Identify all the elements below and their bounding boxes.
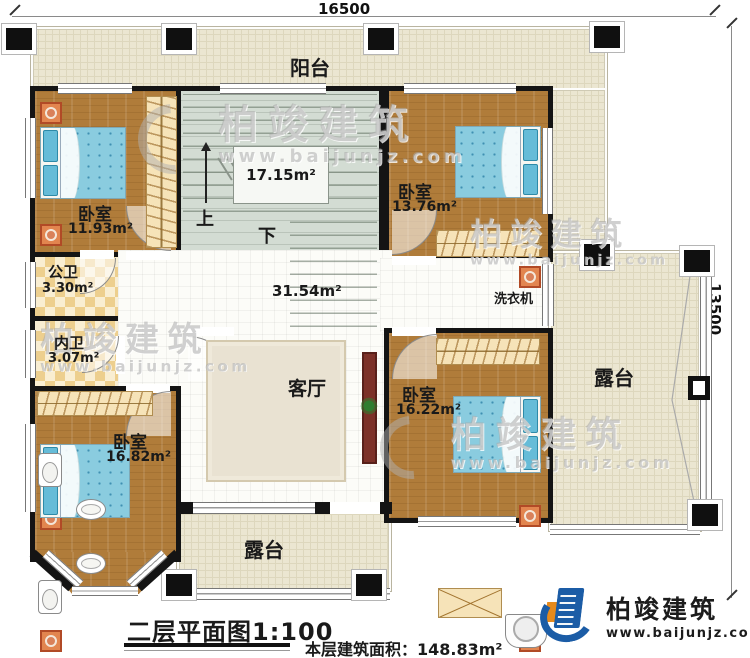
sink [76, 499, 106, 520]
column [166, 28, 192, 50]
floor-area-note: 本层建筑面积：148.83m² [305, 636, 502, 658]
column [356, 574, 382, 596]
closet [436, 230, 540, 257]
pillow [523, 436, 538, 470]
window [25, 262, 36, 308]
stairs-area-callout: 17.15m² [233, 146, 329, 204]
pillow [43, 165, 58, 197]
bed [455, 126, 541, 198]
pillow [43, 483, 58, 516]
column [584, 244, 610, 266]
column [684, 250, 710, 272]
up-arrow-icon [201, 142, 211, 151]
terrace-gate-lines [548, 250, 702, 532]
bedroom-bl-area: 16.82m² [106, 449, 171, 465]
pillow [523, 399, 538, 433]
brand-name: 柏竣建筑 [606, 590, 750, 626]
bed-headboard [520, 397, 540, 472]
living-terrace-door-gap [330, 502, 380, 514]
bed-headboard [520, 127, 540, 197]
laundry-label: 洗衣机 [494, 288, 533, 307]
bed [40, 127, 126, 199]
bed-sheet [61, 128, 80, 198]
toilet [38, 453, 62, 487]
window [404, 83, 516, 94]
dimension-line-right [731, 26, 732, 598]
bath-public-label: 公卫 [48, 261, 78, 282]
nightstand [40, 630, 62, 652]
plant [359, 396, 379, 416]
column [594, 26, 620, 48]
window [25, 330, 36, 378]
column [692, 504, 718, 526]
stairs-area-label: 17.15m² [246, 166, 316, 184]
hall-area: 31.54m² [272, 282, 342, 300]
pillow [523, 129, 538, 161]
column [166, 574, 192, 596]
stairs-down-label: 下 [258, 222, 276, 248]
window [25, 118, 36, 198]
window [418, 516, 516, 527]
nightstand [519, 266, 541, 288]
brand-building-icon [540, 586, 598, 644]
nightstand [40, 102, 62, 124]
bay-window [72, 586, 138, 596]
door-gap [126, 251, 170, 260]
column [6, 28, 32, 50]
living-label: 客厅 [288, 374, 326, 401]
corridor-terrace-door [542, 264, 554, 326]
bed-mattress [456, 127, 520, 197]
bed-mattress [61, 128, 125, 198]
bedroom-tr-area: 13.76m² [392, 199, 457, 215]
bath-private-area: 3.07m² [48, 351, 99, 366]
closet [146, 96, 177, 248]
brand-swoosh-icon [535, 587, 598, 647]
window [542, 128, 553, 214]
dimension-tick [726, 17, 737, 28]
brand-logo: 柏竣建筑 www.baijunjz.com [540, 586, 750, 644]
window [220, 83, 326, 94]
bed-sheet [501, 127, 520, 197]
door-gap [188, 327, 234, 336]
window [58, 83, 132, 94]
terrace-right-label: 露台 [594, 362, 634, 391]
balcony-label: 阳台 [290, 52, 330, 81]
nightstand [519, 505, 541, 527]
bath-public-area: 3.30m² [42, 281, 93, 296]
bed [453, 396, 541, 473]
plan-title: 二层平面图1:100 [127, 612, 333, 647]
title-underline [124, 643, 290, 647]
balcony-right-wing [548, 88, 608, 254]
floor-plan: 16500 13500 [0, 0, 750, 658]
nightstand [40, 224, 62, 246]
window [25, 424, 36, 512]
title-underline-thin [124, 650, 290, 651]
bath-private-label: 内卫 [54, 332, 84, 353]
toilet [38, 580, 62, 614]
column-open [688, 376, 710, 400]
up-arrow-line [205, 151, 207, 203]
bed-sheet [501, 397, 520, 472]
bedroom-br-area: 16.22m² [396, 402, 461, 418]
bed-headboard [41, 128, 61, 198]
closet [37, 391, 153, 416]
dimension-tick [9, 4, 20, 15]
laundry-cabinet [438, 588, 502, 618]
bedroom-tl-area: 11.93m² [68, 221, 133, 237]
stairs-up-label: 上 [196, 205, 214, 231]
door-gap [392, 256, 436, 265]
pillow [523, 164, 538, 196]
stair-treads [290, 212, 377, 327]
bed-mattress [454, 397, 520, 472]
living-window [193, 502, 315, 514]
terrace-bottom-label: 露台 [244, 534, 284, 563]
sink [76, 553, 106, 574]
closet [436, 338, 540, 365]
brand-url: www.baijunjz.com [606, 626, 750, 641]
dimension-tick [709, 4, 720, 15]
living-rug [206, 340, 346, 482]
column [368, 28, 394, 50]
pillow [43, 130, 58, 162]
dimension-top-label: 16500 [318, 0, 370, 18]
